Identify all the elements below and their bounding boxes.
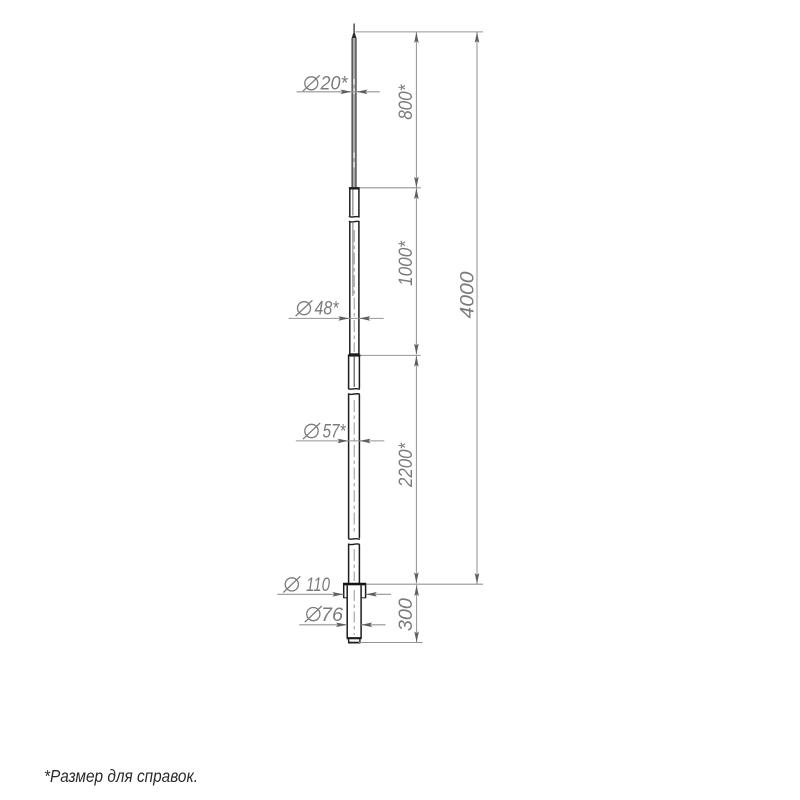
svg-text:57*: 57* xyxy=(323,421,347,443)
svg-text:4000: 4000 xyxy=(457,271,479,318)
svg-text:48*: 48* xyxy=(315,298,340,320)
svg-text:76: 76 xyxy=(321,604,343,626)
svg-text:*Размер для справок.: *Размер для справок. xyxy=(44,766,198,786)
svg-text:300: 300 xyxy=(395,598,417,631)
svg-text:110: 110 xyxy=(306,574,330,596)
svg-text:2200*: 2200* xyxy=(395,442,417,488)
svg-text:1000*: 1000* xyxy=(395,240,417,286)
svg-text:20*: 20* xyxy=(320,73,349,95)
svg-text:800*: 800* xyxy=(395,84,417,120)
